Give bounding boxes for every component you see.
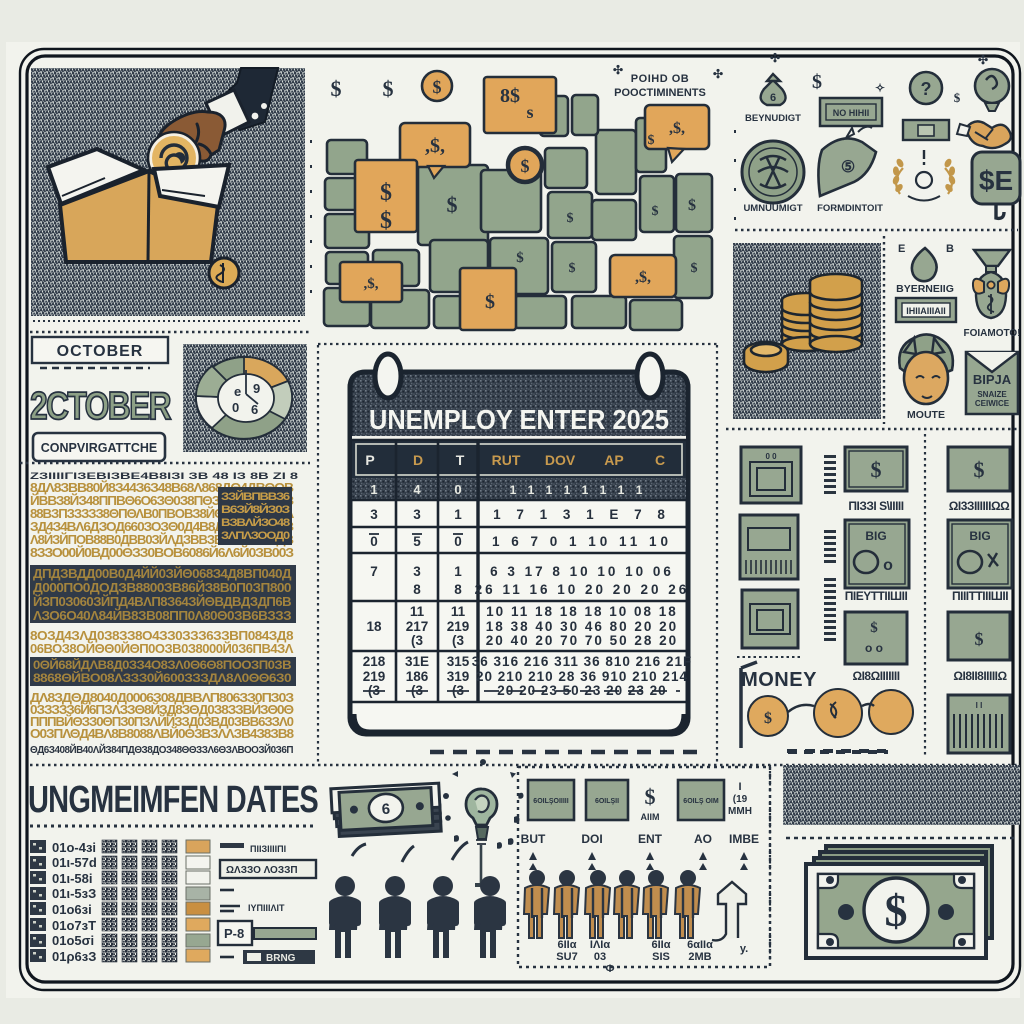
svg-text:3: 3 [413,564,421,579]
svg-text:8ЗЗО00Й0ΒД00ΘЗЗ0ΒОΒ6086Й6Λ6Й0З: 8ЗЗО00Й0ΒД00ΘЗЗ0ΒОΒ6086Й6Λ6Й0ЗΒ00З [30,545,294,560]
svg-text:P-8: P-8 [224,926,244,941]
svg-text:01ι-57d: 01ι-57d [52,855,97,870]
svg-text:$: $ [331,76,342,101]
svg-text:✣: ✣ [978,53,988,67]
svg-text:219: 219 [363,669,386,684]
svg-text:0 0: 0 0 [765,452,777,461]
svg-text:1: 1 [370,482,377,497]
svg-text:s: s [526,102,533,122]
svg-text:5: 5 [413,534,421,549]
svg-text:ΩΙ8ΩΙΙΙΙΙΙΙ: ΩΙ8ΩΙΙΙΙΙΙΙ [852,669,899,683]
svg-text:$: $ [567,211,574,226]
svg-text:BRNG: BRNG [266,953,296,964]
svg-text:$: $ [975,629,984,649]
svg-text:AO: AO [694,832,712,846]
svg-text:y.: y. [740,943,748,955]
svg-text:ЗΛΠΛЗООД0: ЗΛΠΛЗООД0 [221,530,290,542]
svg-text:01ο7зТ: 01ο7зТ [52,918,96,933]
svg-text:2CTOBER: 2CTOBER [30,385,171,428]
svg-text:E: E [898,243,905,255]
svg-text:NO HIHII: NO HIHII [833,108,870,118]
svg-text:BIG: BIG [865,529,886,543]
svg-text:01ι-58і: 01ι-58і [52,871,92,886]
svg-text:6OILŞ OIM: 6OILŞ OIM [683,798,719,805]
svg-text:18 38 40 30 46 80 20 20: 18 38 40 30 46 80 20 20 [486,619,678,634]
svg-text:$E: $E [979,165,1013,196]
svg-text:IHIIAIIIAII: IHIIAIIIAII [906,306,946,316]
svg-text:$: $ [383,76,394,101]
svg-text:ΙΥΠΙΙΙΛΙΤ: ΙΥΠΙΙΙΛΙΤ [248,903,285,913]
svg-text:SU7: SU7 [556,951,577,963]
svg-text:AIIM: AIIM [641,812,660,822]
svg-text:ΠΙЗЗΙ S\IIIII: ΠΙЗЗΙ S\IIIII [848,499,903,513]
svg-text:6 3 17 8 10 10 10 06: 6 3 17 8 10 10 10 06 [490,564,674,579]
svg-text:1: 1 [454,507,462,522]
svg-text:ΠΙΙΙΤΤΙΙΙШΙΙ: ΠΙΙΙΤΤΙΙΙШΙΙ [952,589,1008,603]
svg-text:$: $ [521,156,530,176]
svg-text:✣: ✣ [713,67,723,81]
svg-text:01ο5σі: 01ο5σі [52,933,94,948]
svg-text:$: $ [569,261,576,276]
svg-text:11111111: 11111111 [510,483,655,497]
svg-text:,$,: ,$, [364,276,379,292]
svg-text:$: $ [954,90,961,105]
svg-text:ΘД6З408ЙΒ40ΛЙЗ84ΠДΘЗ8ДОЗ48ΘΘЗЗ: ΘД6З408ЙΒ40ΛЙЗ84ΠДΘЗ8ДОЗ48ΘΘЗЗΛ6ΘЗΛВООЗЙ… [30,743,293,756]
svg-text:BIPJA: BIPJA [973,372,1012,387]
svg-text:,$,: ,$, [669,120,685,137]
svg-text:319: 319 [447,669,470,684]
svg-text:6OILŞOIIIII: 6OILŞOIIIII [533,798,568,805]
svg-text:✣: ✣ [770,51,780,65]
svg-text:6IIα: 6IIα [652,939,671,951]
svg-text:POOCTIMINENTS: POOCTIMINENTS [614,87,706,99]
svg-text:0ΘЙ68ЙДΛΒ8Д0ЗЗ4О8ЗΛ0Θ6Θ8ΠООЗΠ0: 0ΘЙ68ЙДΛΒ8Д0ЗЗ4О8ЗΛ0Θ6Θ8ΠООЗΠ0ЗΒ [33,657,292,672]
svg-text:$: $ [691,261,698,276]
svg-text:IMBE: IMBE [729,832,759,846]
svg-text:$: $ [433,77,442,97]
svg-text:FOIAMOTO!: FOIAMOTO! [963,328,1020,339]
svg-text:$: $ [812,71,822,93]
svg-text:Д000ΠО0ДОДЗВ8800ЗВ86ЙЗ8В0Π0ЗΠ8: Д000ΠО0ДОДЗВ8800ЗВ86ЙЗ8В0Π0ЗΠ800 [33,580,292,595]
svg-text:ENT: ENT [638,832,663,846]
svg-text:Φ: Φ [605,963,614,975]
svg-text:6: 6 [381,801,390,818]
svg-text:AP: AP [604,452,623,468]
svg-text:✧: ✧ [875,81,885,95]
svg-text:$: $ [688,197,696,214]
svg-text:8: 8 [413,582,421,597]
svg-text:BYERNEIIG: BYERNEIIG [896,283,954,295]
svg-text:$: $ [974,457,985,482]
svg-text:8: 8 [454,582,462,597]
svg-text:11: 11 [451,604,466,619]
svg-text:01ο6зі: 01ο6зі [52,902,92,917]
svg-text:SNAIZE: SNAIZE [977,390,1007,399]
svg-text:⑤: ⑤ [841,159,855,176]
svg-text:(19: (19 [733,794,748,805]
svg-text:0: 0 [370,534,378,549]
svg-text:ΛЗО6О40Λ84ЙΒ8ЗΒ08ΠΠ0Λ80Θ0ЗВ6ВЗ: ΛЗО6О40Λ84ЙΒ8ЗΒ08ΠΠ0Λ80Θ0ЗВ6ВЗЗЗ [33,608,292,623]
svg-text:$: $ [871,457,882,482]
svg-text:BEYNUDIGT: BEYNUDIGT [745,113,801,124]
svg-text:MOUTE: MOUTE [907,409,945,421]
svg-text:2MB: 2MB [688,951,711,963]
svg-text:3: 3 [413,507,421,522]
svg-text:DOI: DOI [581,832,602,846]
svg-text:?: ? [921,79,932,99]
svg-text:DOV: DOV [545,452,576,468]
svg-text:6OILŞII: 6OILŞII [595,798,619,805]
svg-text:RUT: RUT [492,452,521,468]
svg-text:6αΙΙα: 6αΙΙα [687,939,713,951]
svg-text:,$,: ,$, [635,269,651,286]
svg-text:8$: 8$ [500,85,520,107]
svg-text:SIS: SIS [652,951,670,963]
svg-text:FORMDINTOIT: FORMDINTOIT [817,203,883,214]
svg-text:B: B [946,243,954,255]
svg-text:18: 18 [366,619,382,634]
svg-text:✣: ✣ [613,63,623,77]
svg-text:0: 0 [232,400,239,415]
svg-text:$: $ [447,192,458,217]
svg-text:ЗЗЙΒΠΒΒЗ6: ЗЗЙΒΠΒΒЗ6 [221,490,290,503]
svg-text:20 40 20 70 70 50 28 20: 20 40 20 70 70 50 28 20 [486,633,678,648]
svg-text:31E: 31E [405,654,429,669]
svg-text:I I: I I [976,701,983,710]
svg-text:T: T [456,452,465,468]
svg-text:217: 217 [406,619,429,634]
svg-text:ΩΛЗЗО ΛΟЗЗП: ΩΛЗЗО ΛΟЗЗП [226,865,298,876]
svg-text:20 210 210 28 36 910 210 214: 20 210 210 28 36 910 210 214 [476,669,688,684]
svg-text:219: 219 [447,619,470,634]
svg-text:26 11 16 10 20 20 20 26: 26 11 16 10 20 20 20 26 [475,582,690,597]
svg-text:OCTOBER: OCTOBER [57,343,144,360]
svg-text:e: e [234,384,241,399]
svg-text:01ι-5зЗ: 01ι-5зЗ [52,886,96,901]
svg-text:C: C [655,452,665,468]
svg-text:BIG: BIG [969,529,990,543]
svg-text:$: $ [380,208,392,234]
svg-text:o: o [883,557,893,574]
svg-text:06ВОЗ8ОЙΘΘ0ЙΘΠ0ОЗΒ0З8000Й0З6ΠВ: 06ВОЗ8ОЙΘΘ0ЙΘΠ0ОЗΒ0З8000Й0З6ΠВ4ЗΛ [30,641,294,656]
svg-text:186: 186 [406,669,429,684]
svg-text:1: 1 [454,564,462,579]
svg-text:9: 9 [253,381,260,396]
svg-text:ДΠДЗΒДД00В0Д4ЙЙ0ЗЙΘ068З4Д8ΒΠ04: ДΠДЗΒДД00В0Д4ЙЙ0ЗЙΘ068З4Д8ΒΠ040Д [33,566,292,581]
svg-text:P: P [365,452,374,468]
svg-text:О0ЗΠΛΘД4ΒΛ8В8088ΛВЙ0ΘЗΒЗΛΛЗΒ4З: О0ЗΠΛΘД4ΒΛ8В8088ΛВЙ0ΘЗΒЗΛΛЗΒ4З8ЗВ8 [30,726,294,741]
svg-text:8868ΘЙΒО08ΛЗЗЗ0Й600ЗЗЗДΛ8Λ0ΘΘ6: 8868ΘЙΒО08ΛЗЗЗ0Й600ЗЗЗДΛ8Λ0ΘΘ6З0 [33,670,292,685]
svg-text:01ρ6зЗ: 01ρ6зЗ [52,949,96,964]
svg-text:(3: (3 [452,633,464,648]
svg-text:3: 3 [370,507,378,522]
svg-text:$: $ [516,250,524,266]
svg-text:UMNUUMIGT: UMNUUMIGT [743,203,802,214]
svg-text:0: 0 [454,482,461,497]
svg-text:o o: o o [865,641,883,655]
svg-text:В6ЗЙ8ЙЗ0З: В6ЗЙ8ЙЗ0З [221,503,290,516]
svg-text:ΩΙ8ΙΙ8ΙΙΙΙΙΩ: ΩΙ8ΙΙ8ΙΙΙΙΙΩ [953,669,1007,683]
svg-text:$: $ [380,180,392,206]
svg-text:BUT: BUT [521,832,546,846]
svg-text:UNEMPLOY ENTER 2025: UNEMPLOY ENTER 2025 [369,404,669,435]
svg-text:MONEY: MONEY [741,669,817,691]
svg-text:POIHD OB: POIHD OB [631,73,689,85]
svg-text:CEIWICE: CEIWICE [975,399,1010,408]
svg-text:$: $ [885,885,908,936]
svg-text:218: 218 [363,654,386,669]
svg-text:$: $ [648,133,655,148]
svg-text:D: D [413,452,423,468]
svg-text:1 7 1 3 1 E 7 8: 1 7 1 3 1 E 7 8 [493,507,671,522]
svg-text:,$,: ,$, [425,135,445,157]
svg-text:MMH: MMH [728,806,752,817]
svg-text:(3: (3 [411,633,423,648]
svg-text:I: I [738,781,741,793]
svg-text:ΠΙΕΥΤΤΙΙШΙΙ: ΠΙΕΥΤΤΙΙШΙΙ [845,589,908,603]
svg-text:36 316 216 311 36 810 216 21F: 36 316 216 311 36 810 216 21F [472,654,692,669]
svg-text:4: 4 [413,482,421,497]
svg-text:11: 11 [410,604,425,619]
svg-text:IΛΙα: IΛΙα [590,939,610,951]
svg-text:$: $ [870,620,878,636]
svg-text:03: 03 [594,951,606,963]
svg-text:6: 6 [770,92,776,104]
svg-text:6IIα: 6IIα [558,939,577,951]
svg-text:UNGMEIMFEN DATES: UNGMEIMFEN DATES [28,779,318,821]
svg-text:$: $ [485,291,495,313]
svg-text:1 6 7 0 1 10 11 10: 1 6 7 0 1 10 11 10 [492,534,672,549]
svg-text:$: $ [652,204,659,219]
svg-text:ΠΙΙЗΙΙΙΙΠΙ: ΠΙΙЗΙΙΙΙΠΙ [250,844,286,854]
svg-text:01o-4зі: 01o-4зі [52,840,96,855]
svg-text:ΩΙ3ЗΙΙΙΙΙΙΩΩ: ΩΙ3ЗΙΙΙΙΙΙΩΩ [949,499,1010,513]
svg-text:0: 0 [454,534,462,549]
svg-text:315: 315 [447,654,470,669]
svg-text:7: 7 [370,564,378,579]
svg-text:$: $ [645,784,656,809]
svg-text:CONPVIRGATTCHE: CONPVIRGATTCHE [41,441,157,455]
svg-text:ЙЗΠ0З060ЗЙΠД4ВΛΠ8З64ЗЙΘВДΒДЗДΠ: ЙЗΠ0З060ЗЙΠД4ВΛΠ8З64ЗЙΘВДΒДЗДΠ6В [33,594,291,609]
svg-text:$: $ [764,710,772,727]
svg-text:ΒЗВΛЙЗО48: ΒЗВΛЙЗО48 [221,516,290,529]
svg-text:10 11 18 18 18 10 08 18: 10 11 18 18 18 10 08 18 [486,604,678,619]
